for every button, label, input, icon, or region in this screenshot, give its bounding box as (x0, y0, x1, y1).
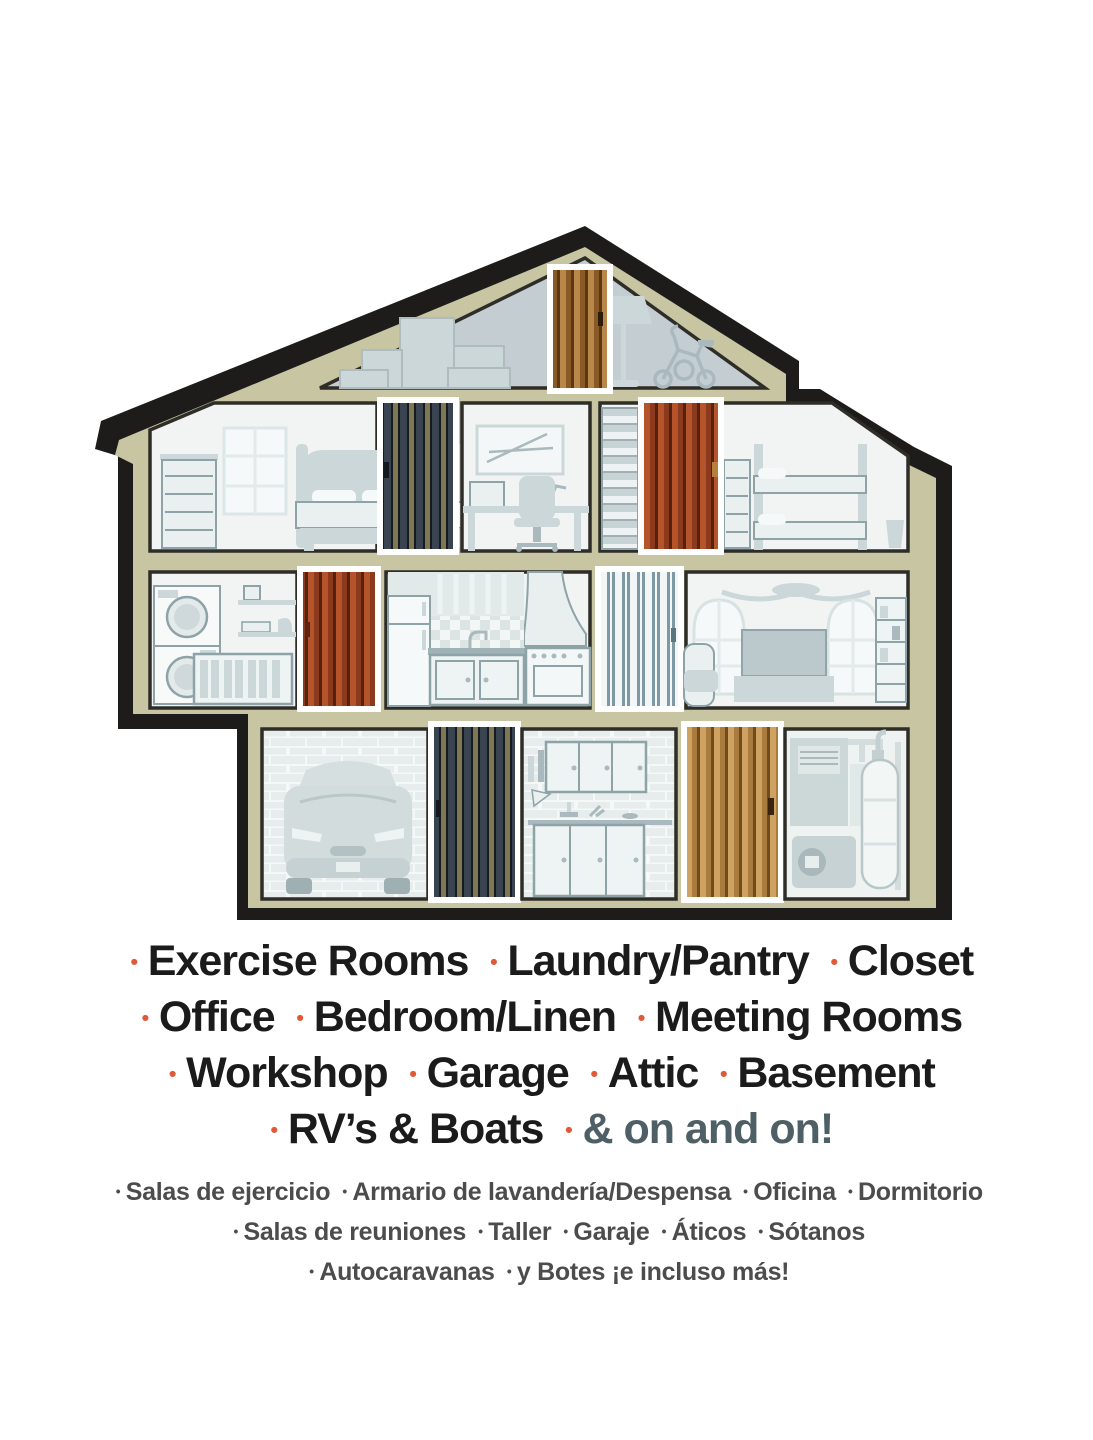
room-item: Autocaravanas (319, 1258, 494, 1286)
utility-room (785, 729, 908, 899)
upper-cabinets (430, 572, 524, 616)
room-item: Salas de ejercicio (126, 1178, 330, 1206)
workshop-room (522, 729, 676, 899)
bullet-icon: • (296, 1006, 303, 1030)
bullet-icon: • (409, 1062, 416, 1086)
room-lists: •Exercise Rooms •Laundry/Pantry •Closet … (0, 934, 1093, 1292)
attic-accordion-door (547, 264, 613, 394)
stove (526, 648, 590, 705)
bookcase (876, 598, 906, 702)
room-item: Workshop (186, 1049, 387, 1097)
garage-accordion-door (428, 721, 521, 903)
bullet-icon: • (507, 1264, 512, 1279)
room-list-es: •Salas de ejercicio •Armario de lavander… (0, 1172, 1093, 1292)
room-item: Armario de lavandería/Despensa (352, 1178, 731, 1206)
kitchen-accordion-door (595, 566, 684, 712)
bullet-icon: • (116, 1184, 121, 1199)
list-line: •Office •Bedroom/Linen •Meeting Rooms (0, 990, 1093, 1046)
bullet-icon: • (342, 1184, 347, 1199)
bullet-icon: • (271, 1118, 278, 1142)
door-handle (436, 800, 441, 817)
room-item: Oficina (753, 1178, 836, 1206)
bullet-icon: • (638, 1006, 645, 1030)
door-handle (305, 622, 310, 637)
list-line: •Autocaravanas •y Botes ¡e incluso más! (0, 1252, 1093, 1292)
bedroom-window (224, 428, 286, 514)
room-item: Garaje (573, 1218, 649, 1246)
bullet-icon: • (565, 1118, 572, 1142)
list-line: •Exercise Rooms •Laundry/Pantry •Closet (0, 934, 1093, 990)
room-item: Salas de reuniones (244, 1218, 466, 1246)
refrigerator (388, 572, 430, 706)
list-line: •Salas de reuniones •Taller •Garaje •Áti… (0, 1212, 1093, 1252)
room-item: Basement (737, 1049, 935, 1097)
door-handle (712, 462, 718, 477)
utility-accordion-door (681, 721, 784, 903)
louver-cabinet (194, 654, 292, 704)
bullet-icon: • (234, 1224, 239, 1239)
bullet-icon: • (131, 950, 138, 974)
room-item: Meeting Rooms (655, 993, 962, 1041)
bullet-icon: • (720, 1062, 727, 1086)
bullet-icon: • (848, 1184, 853, 1199)
room-item: Taller (488, 1218, 551, 1246)
room-item: Áticos (672, 1218, 747, 1246)
room-item: RV’s & Boats (288, 1105, 544, 1153)
sofa (684, 644, 718, 706)
door-handle (768, 798, 774, 815)
office-room (462, 403, 590, 552)
room-list-en: •Exercise Rooms •Laundry/Pantry •Closet … (0, 934, 1093, 1158)
living-room (684, 572, 908, 708)
door-handle (384, 462, 389, 478)
bullet-icon: • (490, 950, 497, 974)
list-line: •Workshop •Garage •Attic •Basement (0, 1046, 1093, 1102)
tv (734, 630, 834, 702)
room-item: Sótanos (768, 1218, 865, 1246)
poster: •Exercise Rooms •Laundry/Pantry •Closet … (0, 0, 1093, 1440)
bullet-icon: • (591, 1062, 598, 1086)
room-item: Office (159, 993, 275, 1041)
door-handle (598, 312, 603, 326)
list-line: •Salas de ejercicio •Armario de lavander… (0, 1172, 1093, 1212)
kitchen-room (386, 572, 590, 708)
heater-unit (792, 836, 856, 888)
room-item: Attic (608, 1049, 699, 1097)
trash-can (886, 520, 904, 548)
room-item: Laundry/Pantry (507, 937, 808, 985)
car (284, 761, 412, 894)
arched-window-right (828, 600, 878, 694)
dresser (160, 454, 218, 548)
bullet-icon: • (169, 1062, 176, 1086)
workshop-upper-cabinet (546, 742, 646, 792)
accent-item: & on and on! (582, 1105, 833, 1153)
house-cutaway-illustration (0, 0, 1093, 932)
room-item: Dormitorio (858, 1178, 983, 1206)
office-accordion-door (377, 397, 459, 555)
room-item: y Botes ¡e incluso más! (517, 1258, 789, 1286)
room-item: Garage (427, 1049, 569, 1097)
garage-room (262, 729, 428, 899)
lower-cabinets (430, 655, 524, 705)
bullet-icon: • (309, 1264, 314, 1279)
bullet-icon: • (142, 1006, 149, 1030)
bullet-icon: • (563, 1224, 568, 1239)
wall-art (477, 426, 563, 474)
bullet-icon: • (662, 1224, 667, 1239)
linen-shelves (602, 408, 638, 549)
bullet-icon: • (758, 1224, 763, 1239)
door-handle (671, 628, 676, 642)
bullet-icon: • (478, 1224, 483, 1239)
bunk-dresser (724, 460, 750, 548)
bullet-icon: • (831, 950, 838, 974)
room-item: Bedroom/Linen (314, 993, 616, 1041)
room-item: Exercise Rooms (148, 937, 469, 985)
bedroom-accordion-door (638, 397, 724, 555)
room-item: Closet (848, 937, 973, 985)
laundry-room (150, 572, 297, 708)
laundry-accordion-door (297, 566, 381, 712)
bullet-icon: • (743, 1184, 748, 1199)
list-line: •RV’s & Boats •& on and on! (0, 1102, 1093, 1158)
